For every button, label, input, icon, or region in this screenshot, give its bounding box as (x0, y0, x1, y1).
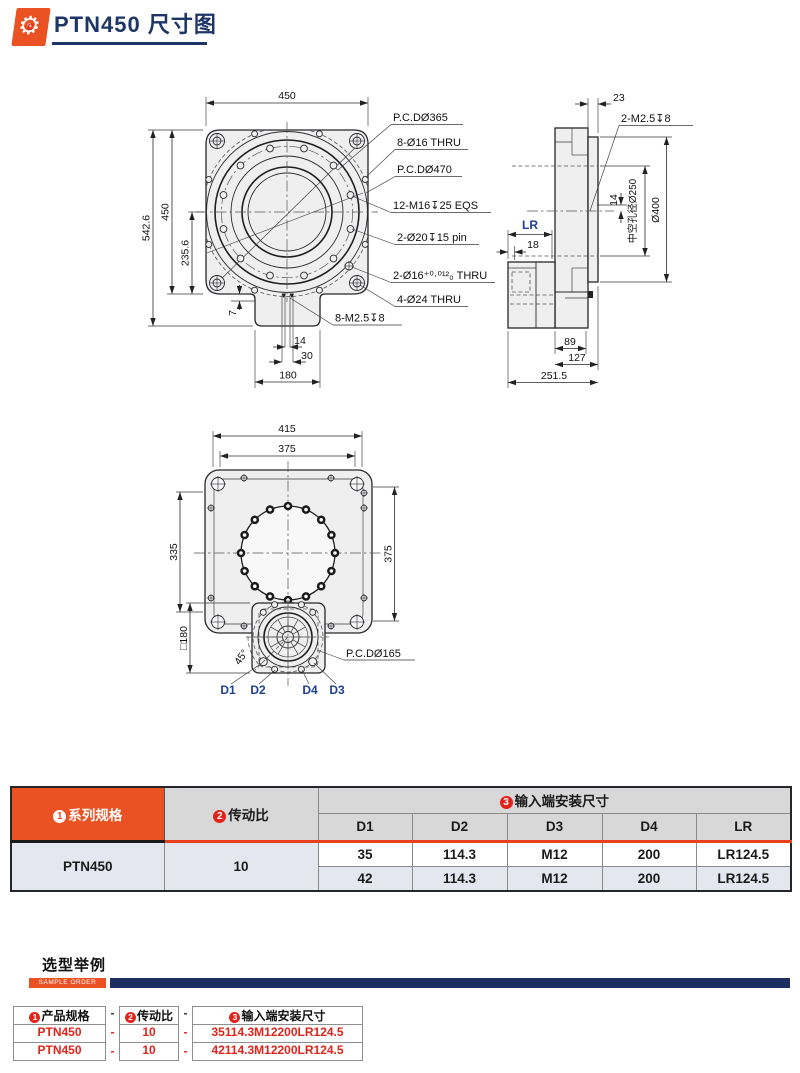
spec-cell: 35 (318, 841, 412, 866)
spec-cell: 42 (318, 866, 412, 891)
sample-cell: 35114.3M12200LR124.5 (192, 1024, 363, 1043)
side-view-drawing: 23 2-M2.5↧8 14 中空孔径Ø250 Ø400 LR 18 89 (497, 92, 694, 388)
label-2-o16-thru: 2-Ø16⁺⁰·⁰¹²₀ THRU (393, 270, 487, 282)
sample-header-ratio: 2传动比 (119, 1006, 179, 1025)
sample-order-title: 选型举例 (42, 957, 106, 975)
dim-127: 127 (568, 352, 586, 364)
spec-cell: LR124.5 (696, 841, 791, 866)
marker-2-icon: 2 (213, 810, 226, 823)
dim-7: 7 (227, 310, 239, 316)
dim-18: 18 (527, 239, 539, 251)
dim-375-top: 375 (278, 443, 296, 455)
label-2-m25: 2-M2.5↧8 (621, 113, 671, 125)
dim-30: 30 (301, 350, 313, 362)
sample-cell: PTN450 (13, 1042, 106, 1061)
dim-89: 89 (564, 336, 576, 348)
label-pcd165: P.C.DØ165 (346, 648, 401, 660)
bottom-view-drawing: 45° 415 375 335 □180 375 P.C.DØ165 D1 (168, 423, 415, 697)
sample-order-tag: SAMPLE ORDER (29, 978, 106, 988)
marker-3-icon: 3 (500, 796, 513, 809)
label-8-m25: 8-M2.5↧8 (335, 313, 385, 325)
spec-header-series: 1系列规格 (11, 787, 164, 841)
page-title: PTN450 尺寸图 (54, 12, 217, 38)
dim-235-6: 235.6 (180, 240, 192, 266)
spec-subheader-lr: LR (696, 813, 791, 841)
label-2-o20-pin: 2-Ø20↧15 pin (397, 232, 467, 244)
spec-cell: 114.3 (412, 866, 507, 891)
dim-14-side: 14 (608, 194, 620, 206)
dim-251-5: 251.5 (541, 370, 567, 382)
datasheet-page: ⚙ c PTN450 尺寸图 (0, 0, 800, 1073)
technical-drawings: 450 542.6 450 235.6 7 14 30 180 (0, 88, 800, 720)
dim-415: 415 (278, 423, 296, 435)
spec-subheader-d3: D3 (507, 813, 602, 841)
spec-cell: 114.3 (412, 841, 507, 866)
spec-cell: M12 (507, 841, 602, 866)
dim-45deg: 45° (232, 647, 251, 667)
spec-subheader-d1: D1 (318, 813, 412, 841)
dim-180: 180 (279, 370, 297, 382)
label-lr: LR (522, 218, 538, 232)
label-d4: D4 (302, 683, 318, 697)
sample-header-product: 1产品规格 (13, 1006, 106, 1025)
spec-ratio-value: 10 (164, 841, 318, 891)
sample-cell: 10 (119, 1042, 179, 1061)
label-4-o24-thru: 4-Ø24 THRU (397, 294, 461, 306)
label-d2: D2 (250, 683, 266, 697)
sample-col-product: 1产品规格 PTN450 PTN450 (13, 1006, 106, 1061)
label-o400: Ø400 (650, 197, 662, 223)
dash-column: - - - (179, 1006, 192, 1063)
spec-header-ratio: 2传动比 (164, 787, 318, 841)
dim-375-right: 375 (383, 545, 395, 563)
spec-subheader-d4: D4 (602, 813, 696, 841)
sample-cell: 10 (119, 1024, 179, 1043)
title-underline (52, 42, 207, 45)
sample-order-bar (110, 978, 790, 988)
spec-subheader-d2: D2 (412, 813, 507, 841)
label-12-m16: 12-M16↧25 EQS (393, 200, 478, 212)
spec-cell: LR124.5 (696, 866, 791, 891)
front-view-drawing: 450 542.6 450 235.6 7 14 30 180 (141, 90, 496, 388)
dim-450-left: 450 (160, 203, 172, 221)
sample-col-input: 3输入端安装尺寸 35114.3M12200LR124.5 42114.3M12… (192, 1006, 363, 1061)
logo-c-mark: c (26, 20, 34, 32)
dim-335: 335 (168, 543, 180, 561)
label-d1: D1 (220, 683, 236, 697)
dim-542-6: 542.6 (141, 215, 153, 241)
label-d3: D3 (329, 683, 345, 697)
label-pcd365: P.C.DØ365 (393, 112, 448, 124)
sample-col-ratio: 2传动比 10 10 (119, 1006, 179, 1061)
spec-table: 1系列规格 2传动比 3输入端安装尺寸 D1 D2 D3 D4 LR PTN45… (10, 786, 792, 892)
dim-450-top: 450 (278, 90, 296, 102)
sample-order-table: 1产品规格 PTN450 PTN450 - - - 2传动比 10 10 - -… (13, 1006, 363, 1063)
dim-14: 14 (294, 335, 306, 347)
label-bore-o250: 中空孔径Ø250 (626, 178, 639, 243)
label-8-o16-thru: 8-Ø16 THRU (397, 137, 461, 149)
sample-cell: PTN450 (13, 1024, 106, 1043)
marker-3-icon: 3 (229, 1012, 240, 1023)
dash-column: - - - (106, 1006, 119, 1063)
marker-2-icon: 2 (125, 1012, 136, 1023)
dim-sq180: □180 (178, 626, 190, 650)
marker-1-icon: 1 (29, 1012, 40, 1023)
brand-logo: ⚙ c (11, 8, 50, 46)
spec-header-input: 3输入端安装尺寸 (318, 787, 791, 813)
sample-header-input: 3输入端安装尺寸 (192, 1006, 363, 1025)
spec-series-value: PTN450 (11, 841, 164, 891)
spec-cell: 200 (602, 866, 696, 891)
label-pcd470: P.C.DØ470 (397, 164, 452, 176)
spec-cell: M12 (507, 866, 602, 891)
sample-cell: 42114.3M12200LR124.5 (192, 1042, 363, 1061)
marker-1-icon: 1 (53, 810, 66, 823)
dim-23: 23 (613, 92, 625, 104)
spec-cell: 200 (602, 841, 696, 866)
